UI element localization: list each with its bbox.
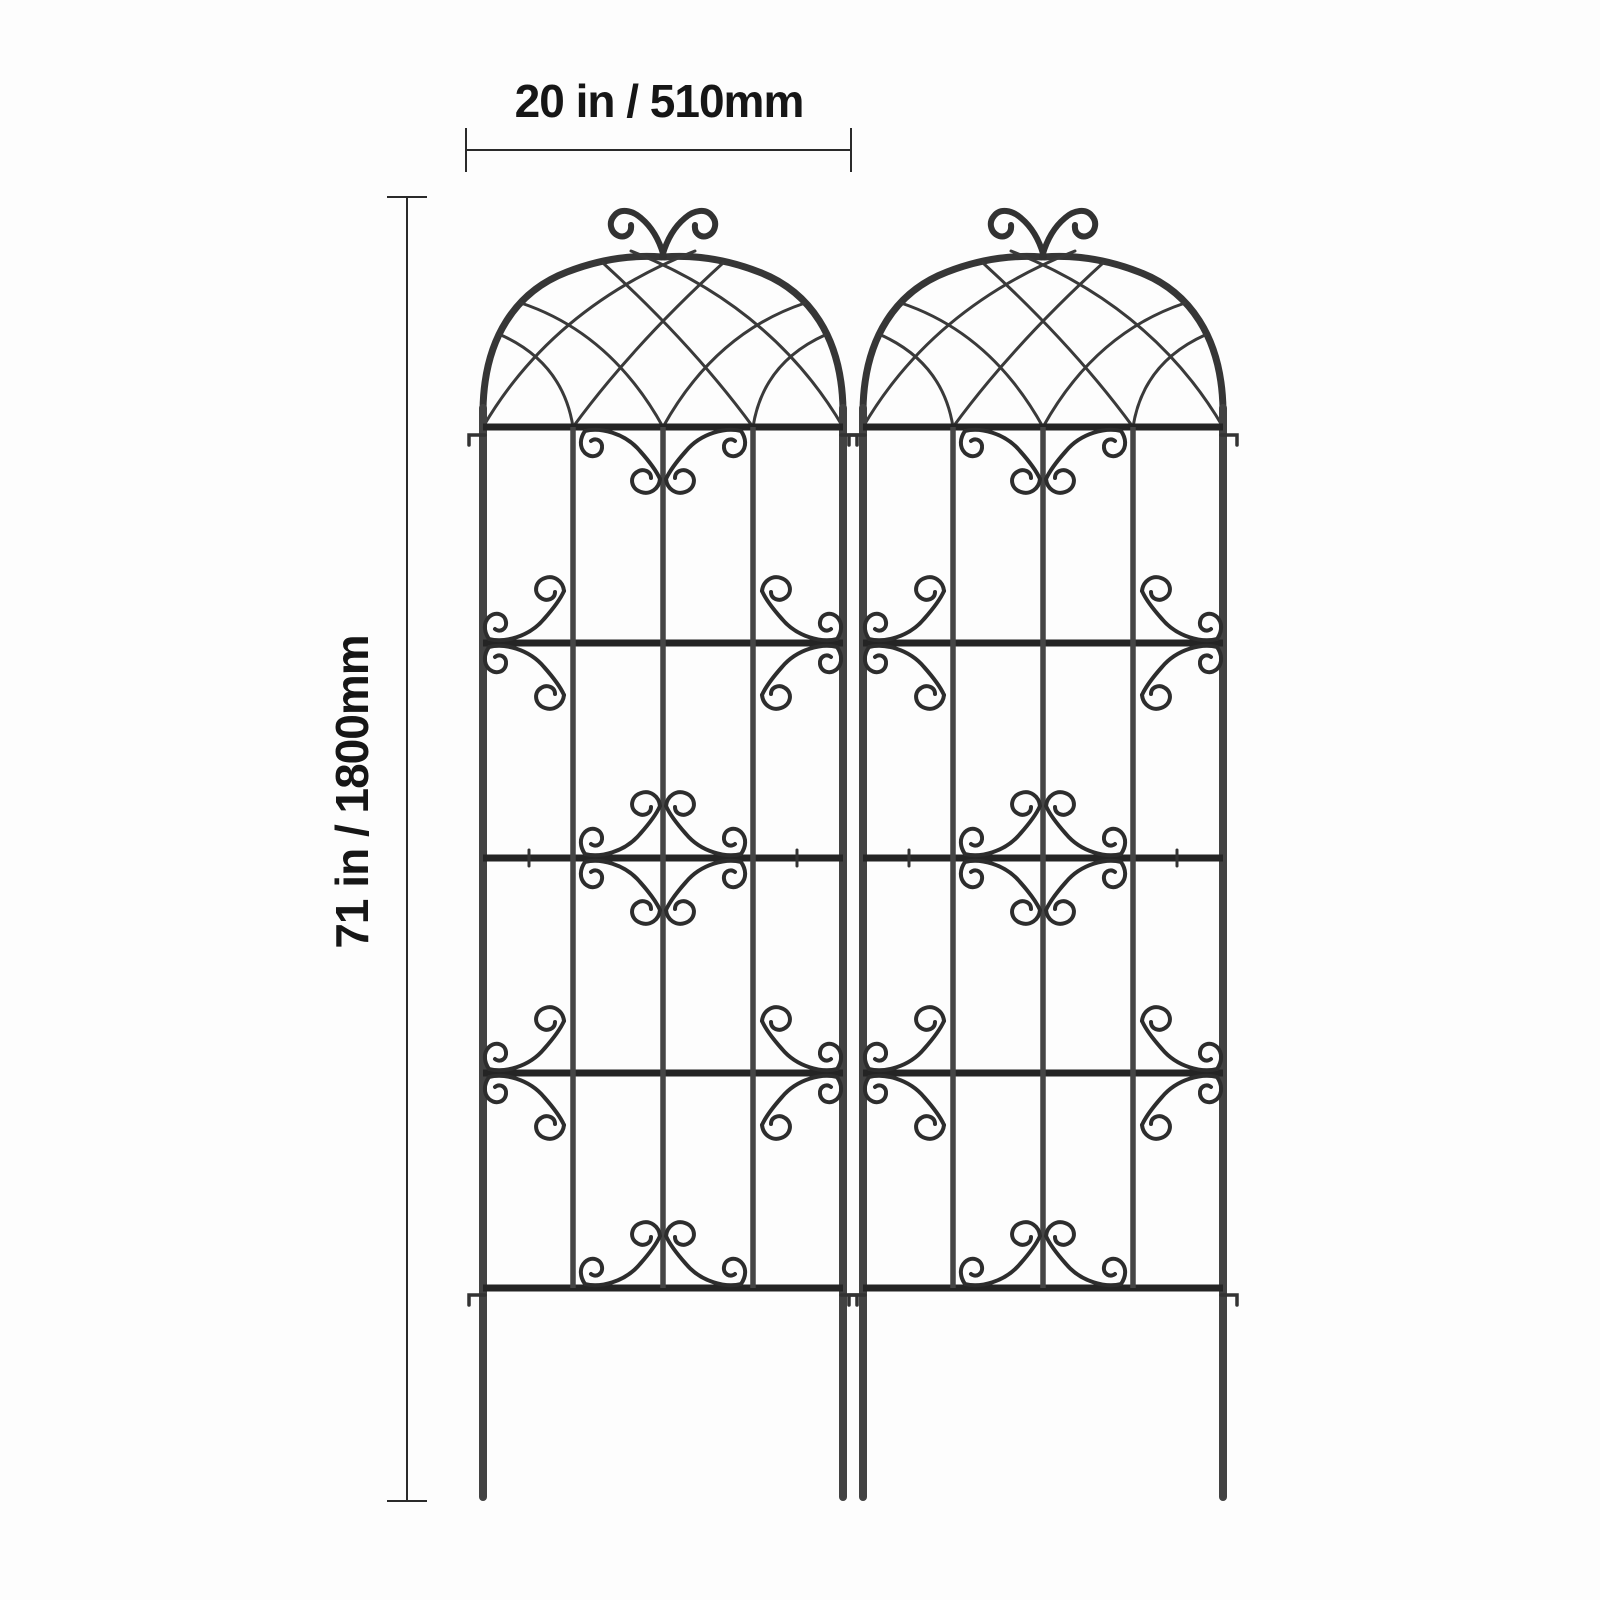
height-dimension-tick-bottom (387, 1500, 427, 1502)
height-dimension-line (406, 197, 408, 1501)
trellis-panel-left (473, 195, 853, 1505)
height-dimension-label: 71 in / 1800mm (329, 635, 375, 948)
width-dimension-tick-left (465, 128, 467, 172)
width-dimension-tick-right (850, 128, 852, 172)
width-dimension-label: 20 in / 510mm (466, 78, 852, 124)
height-dimension-tick-top (387, 196, 427, 198)
trellis-panel-right (853, 195, 1233, 1505)
product-dimension-diagram: 20 in / 510mm 71 in / 1800mm (0, 0, 1600, 1600)
width-dimension-line (466, 149, 852, 151)
